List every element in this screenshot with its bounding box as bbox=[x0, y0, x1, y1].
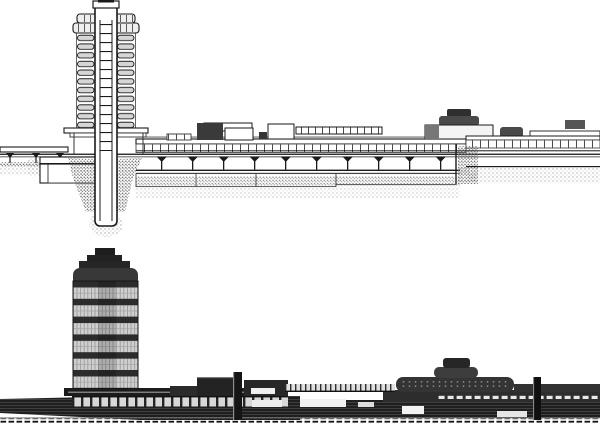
drawing-canvas bbox=[0, 0, 600, 425]
penthouse-shaded-block bbox=[197, 123, 223, 140]
window-opening bbox=[300, 399, 346, 407]
workroom-drum-mid bbox=[434, 367, 478, 378]
research-tower-section bbox=[64, 0, 148, 226]
window-opening bbox=[251, 388, 275, 394]
section-drawing bbox=[0, 0, 600, 237]
chimney-left bbox=[233, 372, 242, 420]
crown-step-2 bbox=[87, 255, 122, 262]
earth-band-right bbox=[460, 168, 600, 183]
elevation-drawing bbox=[0, 248, 600, 423]
drum-base-shade bbox=[425, 125, 439, 139]
ground-shadow-line bbox=[0, 417, 600, 418]
roof-railing-ticks bbox=[285, 384, 395, 392]
chimney-right bbox=[533, 377, 541, 420]
window-opening bbox=[402, 406, 424, 414]
workroom-drum-top bbox=[443, 358, 470, 368]
dendriform-column-row bbox=[140, 156, 448, 170]
crown-step-1 bbox=[95, 248, 115, 256]
roof-window-strip-ticks bbox=[168, 135, 190, 140]
workroom-right-ledge bbox=[514, 384, 600, 392]
service-block-b-cap bbox=[197, 377, 237, 378]
chimney-left-highlight bbox=[233, 372, 234, 420]
roof-right-dark-block bbox=[565, 120, 585, 129]
workroom-band-wide bbox=[396, 377, 514, 392]
right-floor-line bbox=[466, 166, 600, 167]
earth-band-fade bbox=[136, 186, 460, 198]
earth-left-of-room bbox=[28, 158, 40, 176]
podium-window-dashes bbox=[438, 395, 600, 400]
ground-line bbox=[0, 154, 600, 155]
window-opening bbox=[358, 402, 374, 407]
penthouse-block-c bbox=[268, 124, 294, 139]
roof-walkway-ticks bbox=[297, 128, 381, 134]
window-band-right bbox=[497, 411, 527, 417]
drum-top bbox=[447, 109, 471, 117]
tower-core-shadow bbox=[98, 281, 116, 389]
service-block-b bbox=[197, 377, 237, 396]
penthouse-dark-box bbox=[259, 132, 267, 139]
core-rungs bbox=[101, 24, 112, 151]
carport-slab bbox=[0, 147, 68, 152]
tower-floor-pills-left bbox=[77, 34, 95, 130]
drawing-sheet bbox=[0, 0, 600, 425]
penthouse-block-b bbox=[225, 128, 253, 140]
right-clerestory-ticks bbox=[467, 141, 599, 148]
service-block-a bbox=[170, 386, 198, 396]
earth-wedge-left bbox=[68, 158, 95, 212]
earth-band bbox=[136, 176, 460, 186]
core-top-finial bbox=[98, 0, 114, 3]
colonnade-top-line bbox=[72, 396, 288, 397]
right-roof-slab bbox=[466, 136, 600, 140]
tower-floor-pills-right bbox=[117, 34, 135, 130]
basement-floor-line bbox=[136, 170, 460, 171]
crown-step-3 bbox=[79, 261, 130, 269]
window-opening bbox=[252, 400, 282, 407]
tower-shoulder bbox=[73, 268, 138, 282]
ground-dashes bbox=[0, 419, 600, 423]
main-beam bbox=[136, 150, 600, 151]
roof-drum-large bbox=[425, 109, 493, 139]
low-building-section bbox=[136, 109, 600, 198]
workroom-band-dots-1 bbox=[402, 380, 508, 383]
research-tower-elevation bbox=[73, 248, 138, 389]
chimney-right-highlight bbox=[533, 377, 534, 420]
workroom-band-dots-2 bbox=[402, 386, 508, 389]
roof-railing-base bbox=[285, 391, 395, 392]
